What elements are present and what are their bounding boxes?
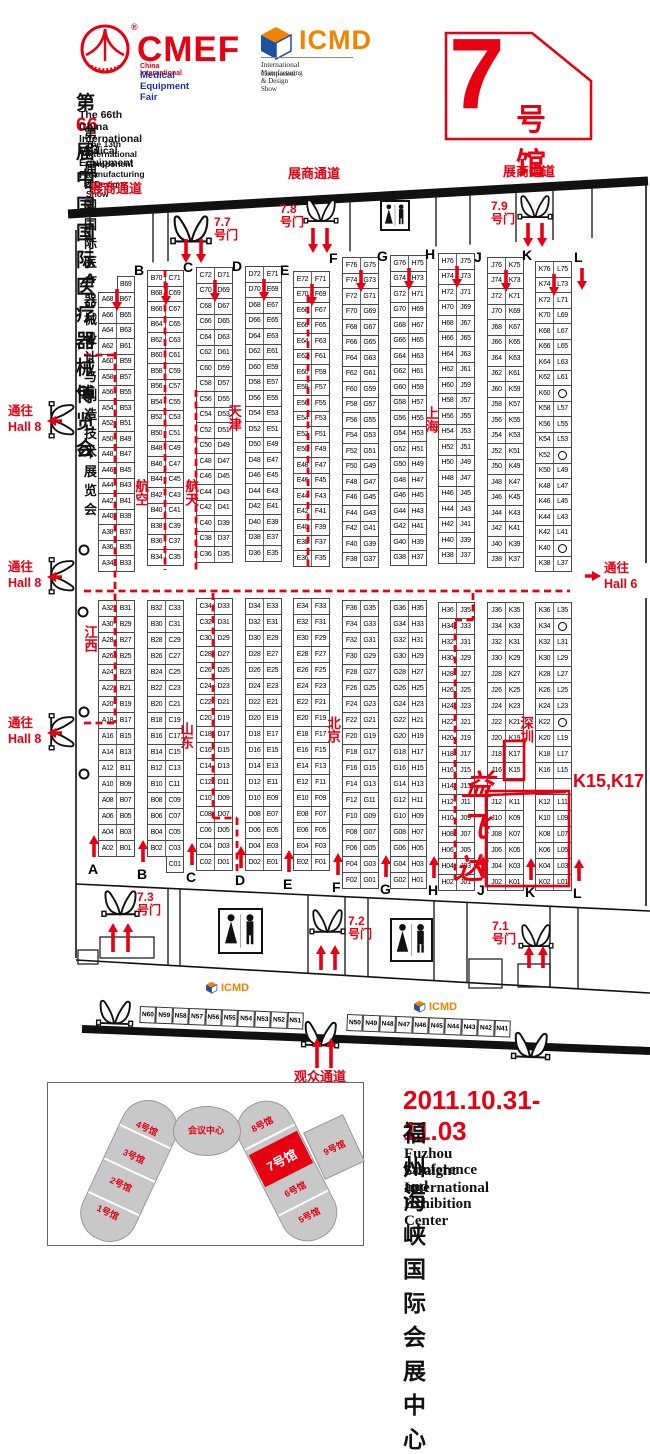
booth-cell: J34K33	[487, 618, 524, 635]
aisle-letter-bottom-H: H	[428, 882, 438, 898]
booth-cell: K30L29	[535, 650, 572, 667]
to-hall6-label: 通往Hall 6	[604, 560, 637, 593]
booth-cell: F70G69	[342, 304, 379, 321]
booth-cell: A20B19	[98, 696, 135, 713]
booth-cell: A54B53	[98, 400, 135, 417]
booth-cell: F62G61	[342, 366, 379, 383]
booth-cell: C68D67	[196, 298, 233, 315]
booth-cell: H60J59	[438, 377, 475, 394]
booth-cell: E42F41	[293, 504, 330, 521]
booth-cell: B52C53	[147, 410, 184, 427]
booth-cell: N51	[287, 1012, 304, 1030]
booth-cell: H76J75	[438, 253, 475, 270]
booth-cell: E66F65	[293, 318, 330, 335]
booth-cell: C32D31	[196, 614, 233, 631]
booth-cell: G62H61	[390, 364, 427, 381]
booth-cell: D52E51	[245, 421, 282, 438]
booth-cell: G02H01	[390, 872, 427, 889]
booth-cell: A62B61	[98, 338, 135, 355]
booth-cell: K74L73	[535, 277, 572, 294]
booth-cell: G12H11	[390, 792, 427, 809]
booth-cell: N60	[139, 1006, 156, 1024]
booth-cell: F58G57	[342, 397, 379, 414]
booth-cell: H52J51	[438, 439, 475, 456]
booth-cell: E64F63	[293, 333, 330, 350]
booth-cell: F64G63	[342, 350, 379, 367]
booth-cell: C12D11	[196, 774, 233, 791]
booth-cell: G20H19	[390, 728, 427, 745]
booth-cell: B34C35	[147, 549, 184, 566]
booth-cell: N53	[254, 1011, 271, 1029]
booth-cell: J38K37	[487, 552, 524, 569]
booth-cell: B48C49	[147, 441, 184, 458]
booth-cell: F54G53	[342, 428, 379, 445]
booth-cell: J02K01	[487, 874, 524, 891]
booth-cell: D26E25	[245, 662, 282, 679]
booth-cell: G68H67	[390, 317, 427, 334]
booth-cell: E24F23	[293, 678, 330, 695]
icmd-cube-icon	[413, 1000, 426, 1013]
booth-cell: F12G11	[342, 792, 379, 809]
booth-cell: C70D69	[196, 283, 233, 300]
booth-cell: D02E01	[245, 854, 282, 871]
booth-cell: G44H43	[390, 503, 427, 520]
booth-cell: D72E71	[245, 266, 282, 283]
booth-cell: A48B47	[98, 447, 135, 464]
booth-cell: A26B25	[98, 648, 135, 665]
booth-cell: K48L47	[535, 478, 572, 495]
booth-cell: F30G29	[342, 648, 379, 665]
booth-cell: E60F59	[293, 364, 330, 381]
booth-cell: B06C07	[147, 808, 184, 825]
booth-cell: A44B43	[98, 478, 135, 495]
booth-cell: F50G49	[342, 459, 379, 476]
booth-cell: K02L01	[535, 874, 572, 891]
booth-cell: C22D21	[196, 694, 233, 711]
booth-cell: H72J71	[438, 284, 475, 301]
booth-cell: H24J23	[438, 698, 475, 715]
booth-cell: C10D09	[196, 790, 233, 807]
aisle-letter-top-C: C	[183, 259, 193, 275]
minimap-conference-center: 会议中心	[188, 1124, 224, 1137]
booth-cell: F22G21	[342, 712, 379, 729]
booth-cell: J06K05	[487, 842, 524, 859]
booth-cell: C60D59	[196, 360, 233, 377]
booth-cell: E70F69	[293, 287, 330, 304]
booth-cell: K20L19	[535, 730, 572, 747]
booth-cell: G04H03	[390, 856, 427, 873]
booth-cell: D36E35	[245, 545, 282, 562]
booth-cell: D66E65	[245, 313, 282, 330]
booth-cell: D28E27	[245, 646, 282, 663]
booth-cell: K10L09	[535, 810, 572, 827]
booth-cell: F04G03	[342, 856, 379, 873]
booth-cell: G34H33	[390, 616, 427, 633]
booth-cell: B12C13	[147, 760, 184, 777]
booth-cell: E68F67	[293, 302, 330, 319]
booth-cell: D40E39	[245, 514, 282, 531]
booth-cell: K56L55	[535, 416, 572, 433]
booth-cell: D08E07	[245, 806, 282, 823]
booth-cell: E56F55	[293, 395, 330, 412]
booth-cell: A32B31	[98, 600, 135, 617]
booth-cell: E58F57	[293, 380, 330, 397]
booth-cell: K40	[535, 540, 572, 557]
icmd-logo-small: ICMD	[413, 1000, 457, 1013]
booth-cell: A02B01	[98, 840, 135, 857]
booth-cell: D38E37	[245, 530, 282, 547]
door-7-3-label: 7.3号门	[137, 891, 161, 917]
exhibitor-passage-label: 展商通道	[288, 163, 340, 182]
booth-cell: E44F43	[293, 488, 330, 505]
booth-cell: D32E31	[245, 614, 282, 631]
booth-cell: D68E67	[245, 297, 282, 314]
booth-cell: B04C05	[147, 824, 184, 841]
booth-cell: B40C41	[147, 503, 184, 520]
booth-cell: J76K75	[487, 257, 524, 274]
booth-cell: B32C33	[147, 600, 184, 617]
booth-cell: G36H35	[390, 600, 427, 617]
booth-cell: C26D25	[196, 662, 233, 679]
booth-cell: N55	[221, 1009, 238, 1027]
booth-cell: D64E63	[245, 328, 282, 345]
brand-booth-numbers: K15,K17	[573, 771, 644, 792]
booth-cell: J44K43	[487, 505, 524, 522]
booth-cell: A58B57	[98, 369, 135, 386]
booth-cell: C16D15	[196, 742, 233, 759]
booth-cell: A30B29	[98, 616, 135, 633]
booth-cell: J62K61	[487, 366, 524, 383]
booth-cell: E16F15	[293, 742, 330, 759]
booth-cell: H64J63	[438, 346, 475, 363]
to-hall8-label: 通往Hall 8	[8, 403, 41, 436]
booth-cell: C34D33	[196, 598, 233, 615]
booth-cell: C46D45	[196, 469, 233, 486]
booth-cell: F14G13	[342, 776, 379, 793]
icmd-logo: ICMD	[299, 25, 372, 56]
booth-cell: F44G43	[342, 505, 379, 522]
booth-cell: F68G67	[342, 319, 379, 336]
booth-cell: A08B07	[98, 792, 135, 809]
booth-cell: H18J17	[438, 746, 475, 763]
booth-cell: K22	[535, 714, 572, 731]
booth-cell: G32H31	[390, 632, 427, 649]
region-hangkong: 航空	[133, 479, 148, 506]
booth-cell: F42G41	[342, 521, 379, 538]
booth-cell: H46J45	[438, 486, 475, 503]
aisle-letter-bottom-E: E	[283, 876, 292, 892]
booth-cell: E04F03	[293, 838, 330, 855]
booth-cell: C48D47	[196, 453, 233, 470]
aisle-letter-bottom-L: L	[573, 885, 582, 901]
booth-cell: K16L15	[535, 762, 572, 779]
booth-cell: A04B03	[98, 824, 135, 841]
booth-cell: F24G23	[342, 696, 379, 713]
region-jiangxi: 江西	[82, 625, 97, 652]
booth-cell: A52B51	[98, 416, 135, 433]
booth-cell: K42L41	[535, 525, 572, 542]
booth-cell: D06E05	[245, 822, 282, 839]
booth-cell: C30D29	[196, 630, 233, 647]
booth-cell: K72L71	[535, 292, 572, 309]
booth-cell: D30E29	[245, 630, 282, 647]
icmd-logo-small: ICMD	[205, 981, 249, 994]
booth-cell: F40G39	[342, 536, 379, 553]
booth-cell: C58D57	[196, 376, 233, 393]
booth-cell: B60C61	[147, 348, 184, 365]
booth-cell: B44C45	[147, 472, 184, 489]
booth-cell: D58E57	[245, 375, 282, 392]
booth-cell: E46F45	[293, 473, 330, 490]
booth-cell: G50H49	[390, 457, 427, 474]
booth-cell: E62F61	[293, 349, 330, 366]
aisle-letter-top-F: F	[329, 250, 338, 266]
booth-cell: K24L23	[535, 698, 572, 715]
booth-cell: D54E53	[245, 406, 282, 423]
cmef-emblem-icon	[77, 20, 135, 84]
booth-cell: N48	[379, 1015, 396, 1033]
booth-cell: B66C67	[147, 301, 184, 318]
booth-cell: G60H59	[390, 379, 427, 396]
booth-cell: E40F39	[293, 519, 330, 536]
booth-cell: C04D03	[196, 838, 233, 855]
booth-cell: K44L43	[535, 509, 572, 526]
booth-cell: E26F25	[293, 662, 330, 679]
booth-cell: B20C21	[147, 696, 184, 713]
region-shanghai: 上海	[423, 406, 438, 433]
booth-cell: D18E17	[245, 726, 282, 743]
booth-cell: C28D27	[196, 646, 233, 663]
booth-cell: N46	[412, 1017, 429, 1035]
booth-cell: G52H51	[390, 441, 427, 458]
booth-cell: G48H47	[390, 472, 427, 489]
aisle-letter-bottom-G: G	[380, 881, 391, 897]
aisle-letter-top-E: E	[280, 262, 289, 278]
booth-cell: E72F71	[293, 271, 330, 288]
booth-cell: J04K03	[487, 858, 524, 875]
booth-cell: C50D49	[196, 438, 233, 455]
booth-cell: N49	[363, 1015, 380, 1033]
booth-cell: J32K31	[487, 634, 524, 651]
booth-cell: G22H21	[390, 712, 427, 729]
booth-cell: J48K47	[487, 474, 524, 491]
booth-cell: E14F13	[293, 758, 330, 775]
booth-cell: C64D63	[196, 329, 233, 346]
booth-cell: K76L75	[535, 261, 572, 278]
booth-cell: K28L27	[535, 666, 572, 683]
booth-cell: H56J55	[438, 408, 475, 425]
booth-cell: K36L35	[535, 602, 572, 619]
booth-cell: K12L11	[535, 794, 572, 811]
booth-cell: J26K25	[487, 682, 524, 699]
booth-cell: G26H25	[390, 680, 427, 697]
booth-cell: B62C63	[147, 332, 184, 349]
booth-cell: H50J49	[438, 455, 475, 472]
booth-cell: E32F31	[293, 614, 330, 631]
booth-cell: C38D37	[196, 531, 233, 548]
booth-cell: G24H23	[390, 696, 427, 713]
aisle-letter-top-G: G	[377, 248, 388, 264]
booth-cell: D12E11	[245, 774, 282, 791]
booth-cell: D62E61	[245, 344, 282, 361]
n-row-left: N60N59N58N57N56N55N54N53N52N51	[139, 1006, 303, 1030]
booth-cell: K66L65	[535, 339, 572, 356]
booth-cell: F26G25	[342, 680, 379, 697]
booth-cell: A46B45	[98, 462, 135, 479]
booth-cell: F74G73	[342, 273, 379, 290]
booth-cell: K64L63	[535, 354, 572, 371]
booth-cell: B69	[117, 276, 136, 293]
booth-cell: H34J33	[438, 618, 475, 635]
booth-cell: A38B37	[98, 524, 135, 541]
booth-cell: E50F49	[293, 442, 330, 459]
booth-cell: J68K67	[487, 319, 524, 336]
booth-cell: N44	[445, 1018, 462, 1036]
booth-cell: F76G75	[342, 257, 379, 274]
booth-cell: G40H39	[390, 534, 427, 551]
booth-cell: J42K41	[487, 521, 524, 538]
booth-cell: K06L05	[535, 842, 572, 859]
booth-cell: F60G59	[342, 381, 379, 398]
booth-cell: J10K09	[487, 810, 524, 827]
booth-cell: H28J27	[438, 666, 475, 683]
booth-cell: F72G71	[342, 288, 379, 305]
booth-cell: D16E15	[245, 742, 282, 759]
booth-cell: J36K35	[487, 602, 524, 619]
booth-cell: A24B23	[98, 664, 135, 681]
to-hall8-label: 通往Hall 8	[8, 715, 41, 748]
booth-cell: E36F35	[293, 550, 330, 567]
booth-cell: K32L31	[535, 634, 572, 651]
booth-cell: B70C71	[147, 270, 184, 287]
booth-cell: B58C59	[147, 363, 184, 380]
booth-cell: F52G51	[342, 443, 379, 460]
booth-cell: A56B55	[98, 385, 135, 402]
booth-cell: F66G65	[342, 335, 379, 352]
icmd-cube-icon	[258, 25, 294, 61]
booth-cell: G64H63	[390, 348, 427, 365]
booth-cell: A68B67	[98, 292, 135, 309]
booth-cell: J30K29	[487, 650, 524, 667]
booth-cell: C02D01	[196, 854, 233, 871]
booth-cell: J70K69	[487, 304, 524, 321]
aisle-letter-top-H: H	[425, 246, 435, 262]
door-7-7-label: 7.7号门	[214, 216, 238, 242]
booth-cell: A40B39	[98, 509, 135, 526]
region-shenzhen: 深圳	[518, 716, 533, 743]
booth-cell: A14B13	[98, 744, 135, 761]
booth-cell: F18G17	[342, 744, 379, 761]
booth-cell: G06H05	[390, 840, 427, 857]
booth-cell: B10C11	[147, 776, 184, 793]
aisle-letter-bottom-A: A	[88, 861, 98, 877]
booth-cell: C66D65	[196, 314, 233, 331]
booth-cell: D70E69	[245, 282, 282, 299]
booth-cell: J72K71	[487, 288, 524, 305]
booth-cell: G56H55	[390, 410, 427, 427]
booth-cell: J52K51	[487, 443, 524, 460]
booth-cell: G70H69	[390, 302, 427, 319]
booth-cell: A34B33	[98, 555, 135, 572]
booth-cell: K50L49	[535, 463, 572, 480]
exhibitor-passage-label: 展商通道	[90, 178, 142, 197]
booth-cell: D60E59	[245, 359, 282, 376]
aisle-letter-top-D: D	[232, 258, 242, 274]
booth-cell: B36C37	[147, 534, 184, 551]
booth-cell: E38F37	[293, 535, 330, 552]
booth-cell: K04L03	[535, 858, 572, 875]
booth-cell: K60	[535, 385, 572, 402]
door-7-2-label: 7.2号门	[348, 915, 372, 941]
booth-cell: C36D35	[196, 546, 233, 563]
booth-cell: A66B65	[98, 307, 135, 324]
booth-cell: F56G55	[342, 412, 379, 429]
booth-cell: C06D05	[196, 822, 233, 839]
booth-cell: A10B09	[98, 776, 135, 793]
booth-cell: D34E33	[245, 598, 282, 615]
booth-cell: C01	[166, 856, 185, 873]
booth-cell: K62L61	[535, 370, 572, 387]
booth-cell: G46H45	[390, 488, 427, 505]
booth-cell: J24K23	[487, 698, 524, 715]
booth-cell: J08K07	[487, 826, 524, 843]
booth-cell: B26C27	[147, 648, 184, 665]
booth-cell: K26L25	[535, 682, 572, 699]
booth-cell: K18L17	[535, 746, 572, 763]
booth-cell: D04E03	[245, 838, 282, 855]
booth-cell: C08D07	[196, 806, 233, 823]
booth-cell: F28G27	[342, 664, 379, 681]
booth-cell: N41	[494, 1020, 511, 1038]
booth-cell: F10G09	[342, 808, 379, 825]
booth-cell: B08C09	[147, 792, 184, 809]
booth-cell: A64B63	[98, 323, 135, 340]
booth-cell: G18H17	[390, 744, 427, 761]
booth-cell: K54L53	[535, 432, 572, 449]
booth-cell: J66K65	[487, 335, 524, 352]
booth-cell: N59	[156, 1007, 173, 1025]
booth-cell: J58K57	[487, 397, 524, 414]
booth-cell: G28H27	[390, 664, 427, 681]
booth-cell: G14H13	[390, 776, 427, 793]
booth-cell: D44E43	[245, 483, 282, 500]
booth-cell: D50E49	[245, 437, 282, 454]
booth-cell	[535, 778, 572, 795]
booth-cell: A18B17	[98, 712, 135, 729]
booth-cell: C44D43	[196, 484, 233, 501]
booth-cell: C24D23	[196, 678, 233, 695]
booth-cell: H30J29	[438, 650, 475, 667]
booth-cell: A28B27	[98, 632, 135, 649]
booth-cell: D10E09	[245, 790, 282, 807]
booth-cell: E08F07	[293, 806, 330, 823]
aisle-letter-bottom-C: C	[186, 869, 196, 885]
booth-cell: J56K55	[487, 412, 524, 429]
booth-cell: N43	[461, 1019, 478, 1037]
booth-cell: G42H41	[390, 519, 427, 536]
booth-cell: G66H65	[390, 333, 427, 350]
booth-cell: N58	[172, 1007, 189, 1025]
aisle-letter-top-B: B	[134, 262, 144, 278]
n-row-right: N50N49N48N47N46N45N44N43N42N41	[346, 1014, 510, 1038]
booth-cell: G38H37	[390, 550, 427, 567]
booth-cell: C20D19	[196, 710, 233, 727]
booth-cell: G08H07	[390, 824, 427, 841]
booth-cell: G10H09	[390, 808, 427, 825]
booth-cell: F20G19	[342, 728, 379, 745]
booth-cell: E06F05	[293, 822, 330, 839]
booth-cell: J46K45	[487, 490, 524, 507]
